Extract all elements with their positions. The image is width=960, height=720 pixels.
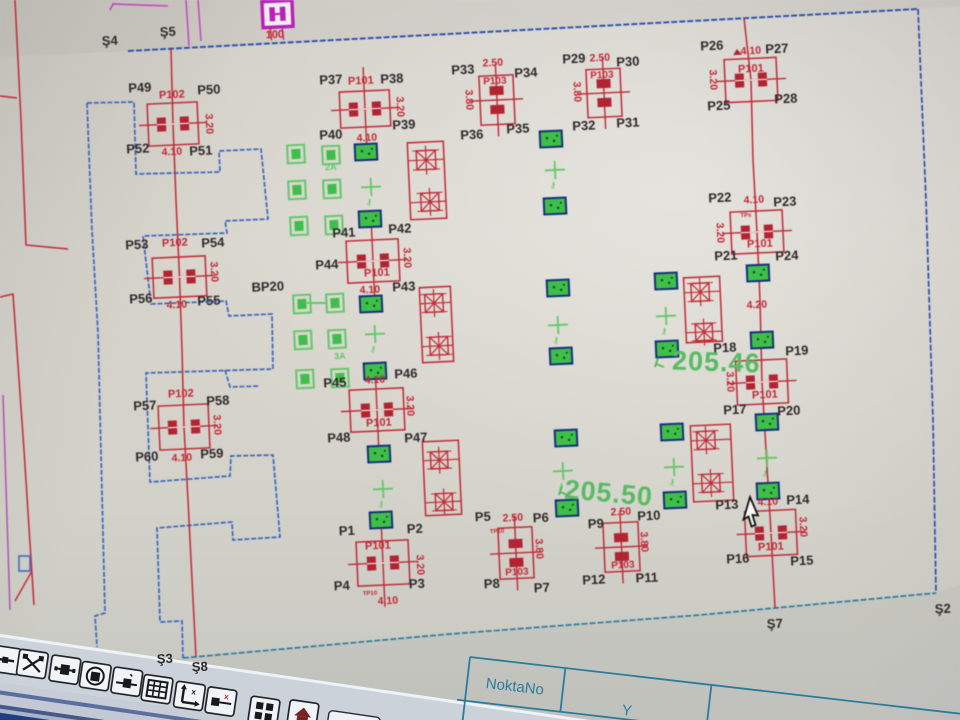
svg-text:NoktaNo: NoktaNo bbox=[485, 675, 545, 699]
svg-text:Ş3: Ş3 bbox=[157, 651, 174, 667]
svg-text:Y: Y bbox=[621, 702, 633, 720]
svg-text:Ş8: Ş8 bbox=[192, 659, 209, 675]
